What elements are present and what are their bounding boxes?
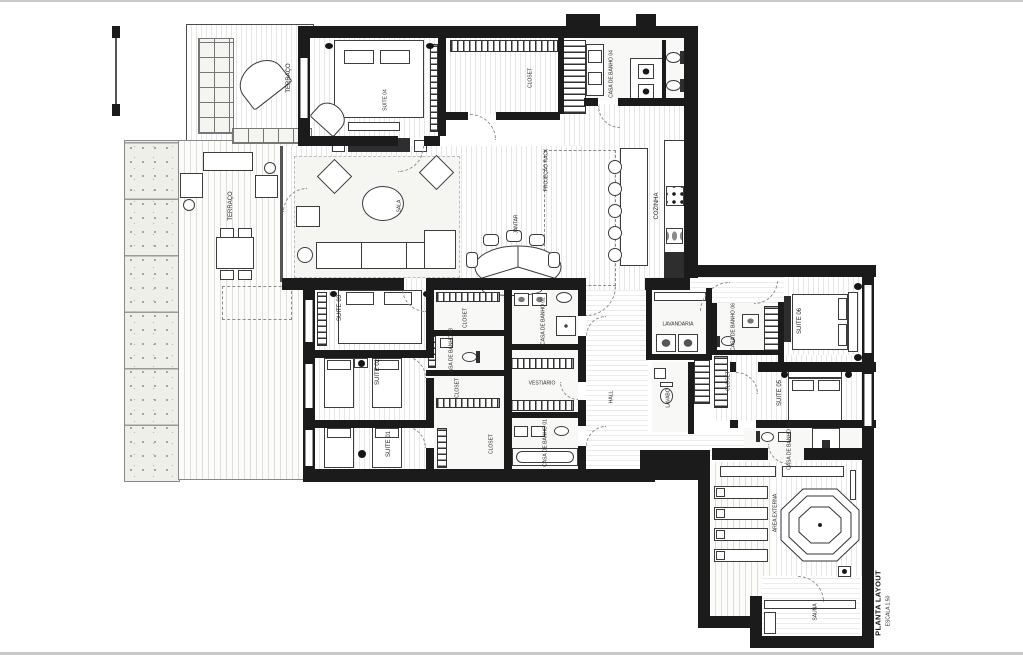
sink xyxy=(742,314,759,328)
pillow xyxy=(380,50,410,64)
wall xyxy=(426,370,506,376)
room-label-banho-01: CASA DE BANHO 01 xyxy=(544,419,549,467)
bedside-lamp xyxy=(845,371,852,378)
wall xyxy=(426,448,434,470)
sink xyxy=(588,50,602,63)
chair xyxy=(238,270,252,280)
bedside-lamp xyxy=(426,43,434,49)
wall xyxy=(778,302,784,366)
wall xyxy=(315,350,427,358)
wall xyxy=(712,350,782,355)
dining-chair xyxy=(466,252,478,268)
wall xyxy=(504,290,512,470)
wall xyxy=(698,458,710,628)
bar-stool xyxy=(608,204,622,218)
wall xyxy=(712,303,717,353)
cooktop xyxy=(666,186,684,206)
bedside-lamp xyxy=(325,43,333,49)
wall xyxy=(636,14,656,28)
closet-rail xyxy=(436,292,500,302)
pillow xyxy=(818,380,840,391)
wall xyxy=(640,450,710,480)
wall xyxy=(688,362,694,434)
room-label-vestiario: VESTIÁRIO xyxy=(529,382,556,387)
pillow xyxy=(792,380,814,391)
wall xyxy=(804,448,864,460)
lounger-pillow xyxy=(716,509,725,518)
pillow xyxy=(327,360,351,370)
room-label-lavandaria: LAVANDARIA xyxy=(663,323,694,328)
wall xyxy=(496,112,560,120)
wall xyxy=(750,636,874,648)
window xyxy=(305,364,313,408)
bedside-lamp xyxy=(358,450,366,458)
wardrobe xyxy=(317,292,327,346)
wall xyxy=(578,336,586,382)
wall xyxy=(426,378,434,428)
window xyxy=(864,374,872,426)
bar-stool xyxy=(608,160,622,174)
scan-edge-top xyxy=(0,0,1023,2)
jacuzzi xyxy=(780,488,860,562)
side-table xyxy=(183,199,195,211)
washing-machine xyxy=(656,334,676,352)
wall xyxy=(298,136,398,146)
wall xyxy=(758,362,876,372)
pillow xyxy=(327,428,351,438)
bedside-lamp xyxy=(854,283,862,290)
kitchen-island xyxy=(620,148,648,266)
floor-plan-page: TERRAÇO SUITE 04 CLOSET CASA DE BANHO 04… xyxy=(0,0,1023,655)
scan-mark xyxy=(112,104,120,116)
sink xyxy=(654,368,666,379)
chaise xyxy=(424,230,456,269)
lounger-pillow xyxy=(716,488,725,497)
window xyxy=(864,285,872,353)
wall xyxy=(426,278,586,290)
pillow xyxy=(344,50,374,64)
chair xyxy=(220,228,234,238)
laundry-shelf xyxy=(654,292,706,301)
room-label-closet: CLOSET xyxy=(456,378,461,398)
closet-rail xyxy=(510,358,574,369)
wall xyxy=(645,278,690,290)
wall xyxy=(646,354,712,360)
wall xyxy=(584,98,598,106)
shower-drain xyxy=(822,440,830,448)
room-label-sauna: SAUNA xyxy=(814,603,819,620)
chair xyxy=(220,270,234,280)
wall xyxy=(282,278,404,290)
pillow xyxy=(838,298,847,320)
headboard xyxy=(848,292,858,352)
wall xyxy=(684,265,876,277)
toilet-tank xyxy=(476,351,480,363)
towel-rack xyxy=(850,470,856,500)
wall xyxy=(646,290,652,360)
room-label-suite-05: SUITE 05 xyxy=(777,380,783,406)
window-wall xyxy=(280,146,283,282)
wall xyxy=(303,469,655,482)
closet-rail xyxy=(437,428,447,468)
wall xyxy=(730,420,738,428)
room-label-suite-06: SUITE 06 xyxy=(797,308,803,334)
toilet xyxy=(462,352,477,362)
shaft xyxy=(694,358,710,404)
wall xyxy=(446,112,468,120)
room-label-terraco-top: TERRAÇO xyxy=(286,63,292,92)
sink xyxy=(514,426,528,437)
room-label-closet: CLOSET xyxy=(490,434,495,454)
wall xyxy=(662,40,666,98)
dining-chair xyxy=(483,234,499,246)
wardrobe xyxy=(430,44,438,132)
scan-mark xyxy=(115,30,117,114)
room-label-sala: SALA xyxy=(398,200,403,213)
toilet-tank xyxy=(756,431,760,442)
wall xyxy=(578,446,586,470)
window xyxy=(305,430,313,466)
window xyxy=(300,58,308,118)
lounger-pillow xyxy=(716,551,725,560)
bedside-lamp xyxy=(854,354,862,361)
bedside-lamp xyxy=(781,371,788,378)
sink xyxy=(638,64,654,79)
outdoor-armchair xyxy=(180,173,203,198)
closet-rail xyxy=(436,398,500,408)
room-label-banho-03: CASA DE BANHO 03 xyxy=(450,328,455,376)
bedside-lamp xyxy=(358,360,365,367)
outdoor-dining-table xyxy=(216,237,254,269)
lounger-pillow xyxy=(716,530,725,539)
wall xyxy=(566,14,600,28)
titleblock-scale: ESCALA 1:50 xyxy=(887,596,892,627)
bar-stool xyxy=(608,248,622,262)
side-table xyxy=(264,162,276,174)
room-label-suite-04: SUITE 04 xyxy=(384,89,389,111)
door-arc xyxy=(470,114,496,140)
dining-chair xyxy=(529,234,545,246)
wall xyxy=(424,136,440,146)
room-label-closet: CLOSET xyxy=(464,308,469,328)
wall xyxy=(426,290,434,358)
garden-strip xyxy=(124,140,180,482)
room-label-suite-01: SUITE 01 xyxy=(386,431,392,457)
room-label-suite-02: SUITE 02 xyxy=(375,359,381,385)
room-label-banho-05: CASA DE BANHO 05 xyxy=(788,422,793,470)
wall xyxy=(438,38,446,136)
room-label-closet: CLOSET xyxy=(529,68,534,88)
closet-rail xyxy=(510,400,574,411)
bar-stool xyxy=(608,226,622,240)
terrace-projection-zone xyxy=(222,286,292,320)
wall xyxy=(618,98,686,106)
wall xyxy=(426,330,506,336)
toilet xyxy=(761,432,774,442)
pouf xyxy=(297,247,313,263)
wall xyxy=(684,26,698,278)
note-projecao: PROJEÇÃO RACK xyxy=(545,149,550,192)
window xyxy=(305,300,313,342)
room-label-area-externa: ÁREA EXTERNA xyxy=(774,494,779,532)
toilet xyxy=(666,80,681,91)
sink xyxy=(638,84,654,99)
toilet xyxy=(556,292,572,303)
room-label-cozinha: COZINHA xyxy=(654,193,660,220)
titleblock-title: PLANTA LAYOUT xyxy=(874,570,882,636)
wall xyxy=(756,420,876,428)
room-label-terraco: TERRAÇO xyxy=(228,191,234,220)
room-label-jantar: JANTAR xyxy=(515,214,520,233)
wall xyxy=(712,448,768,460)
chair xyxy=(238,228,252,238)
outdoor-sofa xyxy=(203,152,253,171)
toilet xyxy=(554,426,569,436)
bar-stool xyxy=(608,182,622,196)
pillow xyxy=(346,292,374,305)
tv-rack xyxy=(784,296,791,342)
kitchen-sink xyxy=(666,228,683,244)
washing-machine xyxy=(678,334,698,352)
wall xyxy=(298,26,694,38)
bed-bench xyxy=(348,122,400,131)
room-label-suite-03: SUITE 03 xyxy=(337,295,343,321)
shower xyxy=(556,316,576,336)
room-label-lavabo: LAVABO xyxy=(667,388,672,407)
wall xyxy=(578,290,586,316)
wall xyxy=(504,412,580,418)
room-label-banho-04: CASA DE BANHO 04 xyxy=(610,50,615,98)
planter-grid xyxy=(198,38,234,134)
outdoor-armchair xyxy=(255,175,278,198)
table-dot xyxy=(842,569,847,574)
dining-chair xyxy=(548,252,560,268)
pillow xyxy=(838,324,847,346)
wall xyxy=(315,420,427,428)
toilet xyxy=(666,52,681,63)
toilet-tank xyxy=(660,382,673,387)
scan-mark xyxy=(112,26,120,38)
sink xyxy=(514,293,529,306)
room-label-banho-06: CASA DE BANHO 06 xyxy=(732,303,737,351)
sauna-bench xyxy=(764,612,776,634)
wall xyxy=(558,38,564,114)
room-label-closet: CLOSET xyxy=(727,371,732,391)
room-label-hall: HALL xyxy=(610,391,615,404)
bedside-lamp xyxy=(330,291,337,297)
bench xyxy=(720,466,776,477)
room-label-banho-02: CASA DE BANHO 02 xyxy=(542,297,547,345)
sink xyxy=(588,72,602,85)
closet-rail xyxy=(450,40,558,52)
